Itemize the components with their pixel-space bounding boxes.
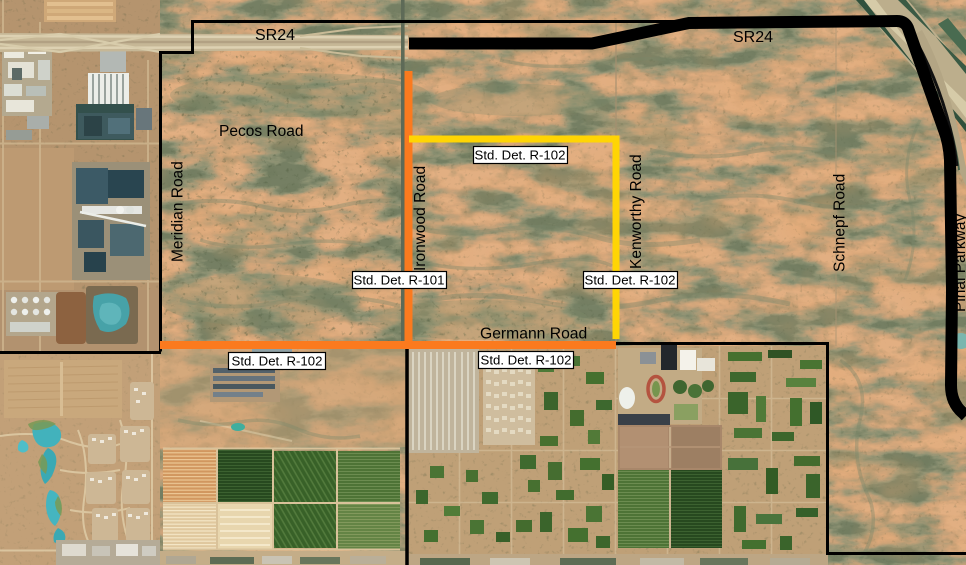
- svg-text:Std. Det. R-102: Std. Det. R-102: [475, 148, 566, 163]
- svg-text:Kenworthy Road: Kenworthy Road: [628, 154, 645, 269]
- svg-text:Pecos Road: Pecos Road: [219, 123, 303, 140]
- svg-text:Germann Road: Germann Road: [480, 326, 587, 343]
- svg-text:SR24: SR24: [255, 27, 295, 44]
- svg-text:Schnepf Road: Schnepf Road: [832, 174, 849, 272]
- svg-text:Meridian Road: Meridian Road: [170, 161, 187, 262]
- svg-text:Std. Det. R-101: Std. Det. R-101: [354, 273, 445, 288]
- svg-text:Pinal Parkway: Pinal Parkway: [952, 214, 966, 312]
- svg-text:Std. Det. R-102: Std. Det. R-102: [585, 273, 676, 288]
- svg-text:Ironwood Road: Ironwood Road: [412, 166, 429, 271]
- svg-text:SR24: SR24: [733, 29, 773, 46]
- svg-text:Std. Det. R-102: Std. Det. R-102: [481, 353, 572, 368]
- svg-text:Std. Det. R-102: Std. Det. R-102: [232, 354, 323, 369]
